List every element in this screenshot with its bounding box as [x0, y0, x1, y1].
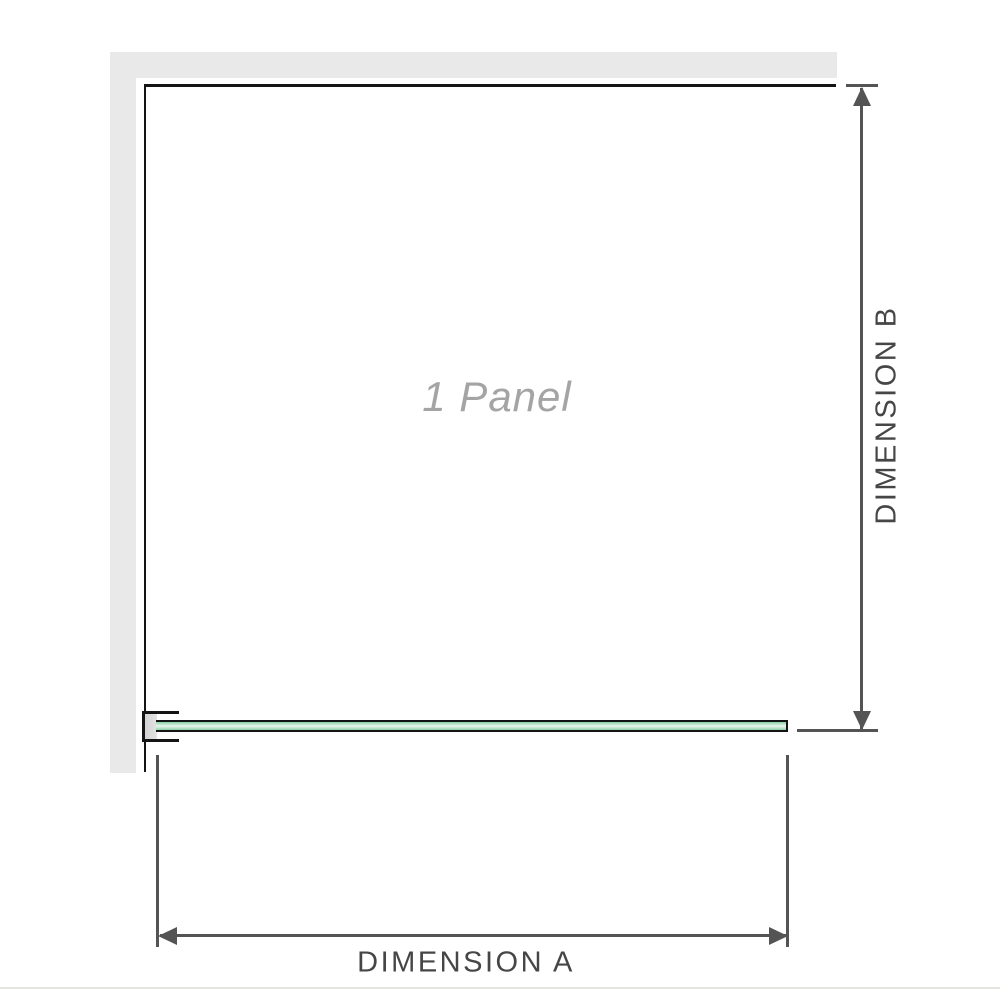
- dimension-a-extension-left: [156, 755, 159, 947]
- glass-panel: [156, 720, 788, 732]
- arrow-right-icon: [769, 927, 788, 945]
- arrow-down-icon: [853, 711, 871, 730]
- wall-left: [110, 52, 136, 773]
- arrow-left-icon: [158, 927, 177, 945]
- dimension-b-line: [860, 88, 863, 730]
- arrow-up-icon: [853, 87, 871, 106]
- dimension-a-extension-right: [786, 755, 789, 947]
- dimension-b-label: DIMENSION B: [871, 305, 904, 524]
- panel-count-label: 1 Panel: [422, 373, 571, 421]
- footer-divider: [0, 987, 1000, 989]
- panel-top-border: [144, 84, 836, 87]
- shower-screen-diagram: 1 Panel DIMENSION B DIMENSION A: [0, 0, 1000, 1000]
- wall-top: [110, 52, 837, 78]
- panel-left-border: [144, 84, 147, 772]
- dimension-a-label: DIMENSION A: [357, 947, 575, 980]
- dimension-a-line: [160, 934, 787, 937]
